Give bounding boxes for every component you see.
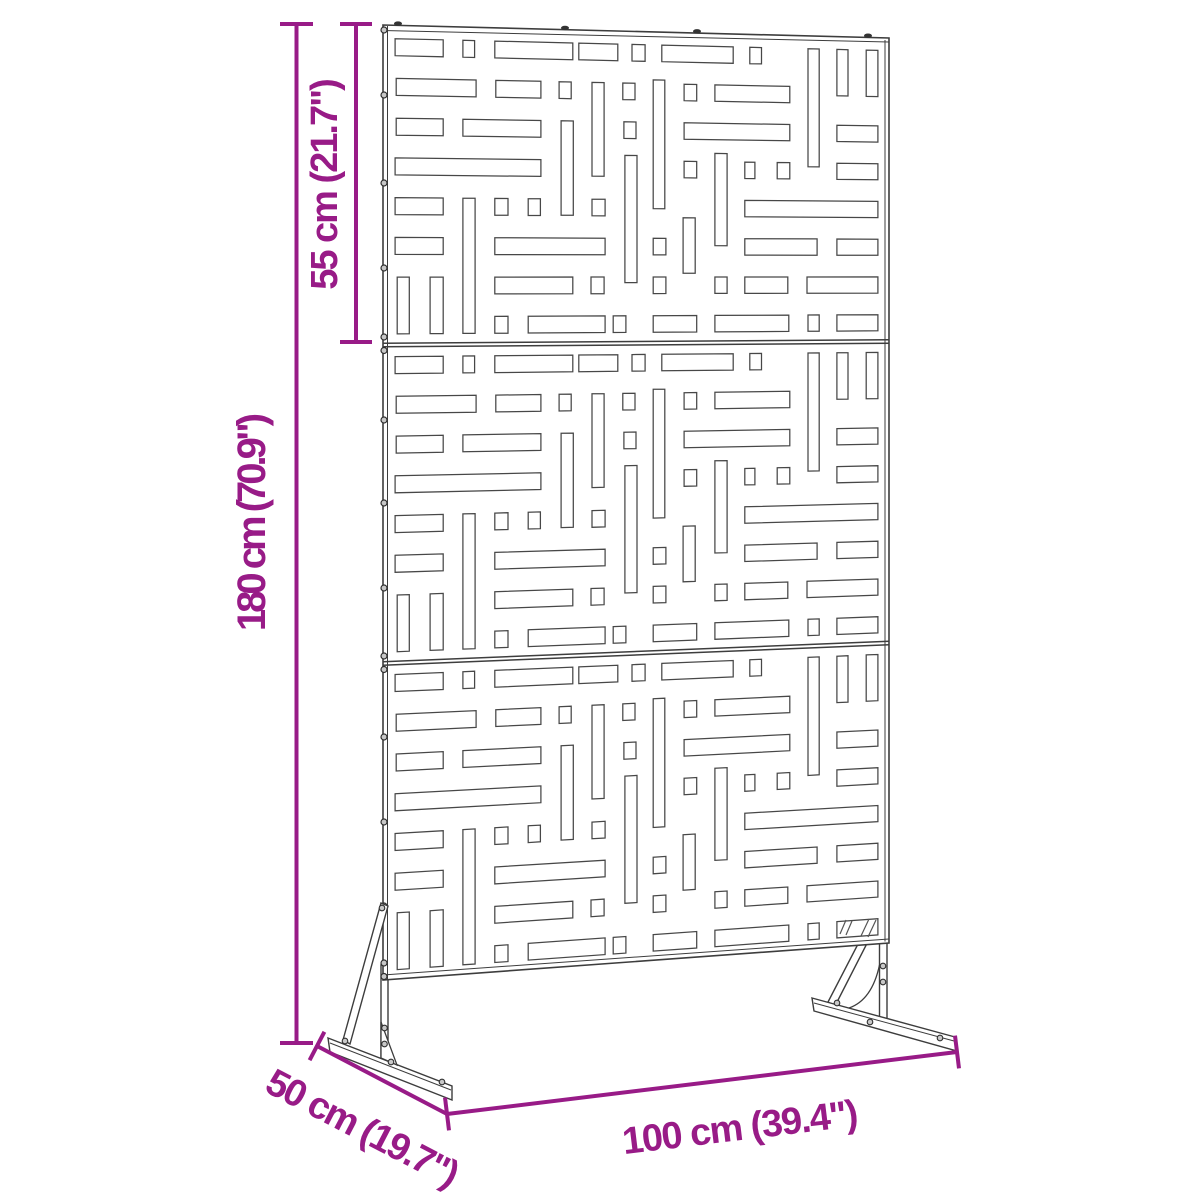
cutout bbox=[395, 198, 443, 215]
cutout bbox=[653, 856, 666, 873]
screw bbox=[381, 417, 387, 423]
screw bbox=[381, 334, 387, 340]
cutout bbox=[653, 238, 666, 255]
cutout bbox=[395, 870, 443, 890]
cutout bbox=[495, 667, 573, 687]
cutout bbox=[750, 353, 762, 370]
screw bbox=[381, 348, 387, 354]
cutout bbox=[528, 627, 605, 647]
cutout bbox=[430, 277, 443, 334]
cutout bbox=[528, 512, 540, 529]
cutout bbox=[495, 355, 573, 373]
cutout bbox=[653, 624, 697, 642]
cutout bbox=[653, 932, 697, 952]
cutout bbox=[592, 510, 605, 527]
screw bbox=[381, 667, 387, 673]
cutout bbox=[396, 435, 443, 453]
cutout bbox=[808, 49, 819, 167]
cutout bbox=[632, 664, 645, 681]
cutout bbox=[495, 827, 508, 845]
cutout bbox=[559, 82, 571, 99]
cutout bbox=[592, 821, 605, 838]
cutout bbox=[807, 579, 878, 598]
cutout bbox=[395, 39, 443, 57]
cutout bbox=[745, 543, 817, 562]
cutout bbox=[463, 119, 541, 137]
cutout bbox=[395, 473, 541, 493]
cutout bbox=[745, 887, 788, 906]
cutout bbox=[837, 768, 878, 787]
cutout bbox=[684, 393, 697, 410]
cutout bbox=[715, 315, 789, 332]
cutout bbox=[495, 316, 508, 333]
cutout bbox=[866, 655, 878, 702]
cutout bbox=[837, 315, 878, 331]
cutout bbox=[591, 277, 604, 294]
cutout bbox=[496, 395, 541, 412]
cutout bbox=[395, 673, 443, 692]
cutout bbox=[684, 701, 697, 718]
cutout bbox=[579, 355, 618, 372]
screw bbox=[381, 585, 387, 591]
dimension-label-section-height: 55 cm (21.7") bbox=[304, 80, 346, 290]
cutout bbox=[632, 44, 645, 61]
cutout bbox=[395, 514, 443, 532]
cutout bbox=[395, 554, 443, 572]
cutout bbox=[397, 277, 409, 334]
screw bbox=[381, 500, 387, 506]
screw bbox=[381, 92, 387, 98]
screw bbox=[381, 653, 387, 659]
cutout bbox=[837, 163, 878, 180]
cutout bbox=[653, 547, 666, 564]
cutout bbox=[397, 595, 409, 652]
width-dimension: 100 cm (39.4") bbox=[445, 1036, 959, 1163]
screw bbox=[381, 960, 387, 966]
cutout bbox=[625, 466, 637, 594]
cutout bbox=[430, 593, 443, 650]
cutout bbox=[837, 428, 878, 445]
screw bbox=[381, 819, 387, 825]
cutout bbox=[653, 586, 666, 603]
cutout bbox=[837, 466, 878, 483]
cutout bbox=[837, 49, 848, 96]
cutout bbox=[623, 703, 635, 720]
section-height-dimension: 55 cm (21.7") bbox=[304, 24, 372, 342]
cutout bbox=[623, 83, 635, 100]
cutout bbox=[463, 40, 475, 57]
cutout bbox=[495, 238, 605, 255]
cutout bbox=[592, 82, 604, 176]
cutout bbox=[395, 158, 541, 177]
cutout bbox=[495, 513, 508, 530]
cutout bbox=[750, 659, 762, 676]
cutout bbox=[559, 706, 571, 723]
cutout bbox=[715, 696, 790, 716]
cutout bbox=[745, 774, 755, 791]
cutout bbox=[715, 584, 727, 601]
cutout bbox=[662, 661, 733, 681]
cutout bbox=[715, 768, 727, 861]
cutout bbox=[495, 631, 508, 648]
cutout bbox=[591, 588, 604, 605]
cutout bbox=[463, 514, 475, 650]
cutout bbox=[396, 711, 476, 732]
cutout bbox=[613, 626, 626, 643]
cutout bbox=[745, 468, 755, 485]
cutout bbox=[715, 461, 727, 553]
cutout bbox=[683, 526, 695, 582]
cutout bbox=[837, 125, 878, 142]
cutout bbox=[837, 730, 878, 748]
cutout bbox=[684, 123, 790, 141]
screw-head bbox=[394, 21, 402, 25]
cutout bbox=[495, 41, 573, 60]
cutout bbox=[837, 843, 878, 862]
screw-head bbox=[693, 29, 701, 33]
screw-head bbox=[561, 26, 569, 30]
cutout bbox=[808, 353, 819, 471]
cutout bbox=[463, 198, 475, 333]
cutout bbox=[625, 155, 637, 282]
cutout bbox=[613, 316, 626, 333]
cutout bbox=[592, 394, 604, 488]
cutout bbox=[397, 912, 409, 970]
cutout bbox=[561, 745, 573, 840]
screw bbox=[381, 265, 387, 271]
cutout bbox=[528, 825, 540, 843]
cutout bbox=[684, 470, 697, 487]
cutout bbox=[463, 356, 475, 373]
cutout bbox=[750, 47, 762, 64]
cutout bbox=[837, 656, 848, 703]
cutout bbox=[745, 582, 788, 600]
cutout bbox=[745, 239, 817, 256]
cutout bbox=[777, 468, 790, 485]
cutout bbox=[561, 433, 573, 527]
cutout bbox=[496, 80, 541, 98]
cutout bbox=[653, 277, 666, 294]
cutout bbox=[653, 895, 666, 912]
cutout bbox=[684, 778, 697, 795]
screw bbox=[381, 734, 387, 740]
cutout bbox=[624, 432, 636, 449]
cutout bbox=[808, 315, 819, 331]
product-dimension-diagram: 180 cm (70.9") 55 cm (21.7") 50 cm (19.7… bbox=[0, 0, 1200, 1200]
cutout bbox=[592, 199, 605, 216]
cutout bbox=[623, 393, 635, 410]
cutout bbox=[592, 705, 604, 799]
cutout bbox=[430, 910, 443, 967]
cutout bbox=[396, 78, 476, 97]
cutout bbox=[495, 198, 508, 215]
cutout bbox=[561, 121, 573, 216]
dimension-label-total-height: 180 cm (70.9") bbox=[230, 414, 274, 631]
cutout bbox=[495, 589, 573, 609]
dimension-label-width: 100 cm (39.4") bbox=[620, 1093, 859, 1163]
cutout bbox=[866, 50, 878, 97]
cutout bbox=[808, 923, 819, 940]
cutout bbox=[395, 831, 443, 851]
screw bbox=[381, 27, 387, 33]
cutout bbox=[395, 356, 443, 373]
cutout bbox=[715, 153, 727, 245]
cutout bbox=[624, 742, 636, 759]
cutout bbox=[395, 237, 443, 254]
screen-panel bbox=[381, 21, 889, 980]
screw-head bbox=[864, 34, 872, 38]
cutout bbox=[463, 747, 541, 768]
cutout bbox=[837, 617, 878, 635]
cutout bbox=[624, 122, 636, 139]
cutout bbox=[653, 80, 665, 209]
cutout bbox=[745, 200, 878, 217]
cutout bbox=[591, 899, 604, 917]
dimension-diagram-canvas: 180 cm (70.9") 55 cm (21.7") 50 cm (19.7… bbox=[0, 0, 1200, 1200]
cutout bbox=[579, 43, 618, 61]
cutout bbox=[745, 277, 788, 293]
cutout bbox=[715, 891, 727, 908]
cutout bbox=[463, 434, 541, 452]
cutout bbox=[715, 391, 790, 408]
cutout bbox=[495, 549, 605, 569]
cutout bbox=[463, 829, 475, 965]
cutout bbox=[777, 163, 790, 179]
cutout bbox=[653, 316, 697, 333]
cutout bbox=[662, 45, 733, 63]
cutout bbox=[684, 84, 697, 101]
cutout bbox=[837, 239, 878, 255]
cutout bbox=[808, 657, 819, 776]
cutout bbox=[745, 503, 878, 523]
cutout bbox=[837, 353, 848, 400]
screw bbox=[381, 974, 387, 980]
cutout bbox=[683, 834, 695, 890]
total-height-dimension: 180 cm (70.9") bbox=[230, 24, 313, 1043]
cutout bbox=[807, 277, 878, 293]
cutout bbox=[662, 354, 733, 371]
cutout bbox=[528, 199, 540, 216]
cutout bbox=[837, 541, 878, 558]
cutout bbox=[396, 118, 443, 136]
cutout bbox=[632, 354, 645, 371]
cutout bbox=[745, 162, 755, 179]
cutout bbox=[496, 708, 541, 727]
cutout bbox=[715, 620, 789, 639]
cutout bbox=[653, 698, 665, 827]
cutout bbox=[579, 665, 618, 683]
cutout bbox=[495, 277, 573, 294]
screw bbox=[381, 180, 387, 186]
right-gusset bbox=[849, 965, 880, 1008]
cutout bbox=[495, 945, 508, 963]
cutout bbox=[715, 85, 790, 103]
cutout bbox=[463, 671, 475, 688]
cutout bbox=[396, 395, 476, 413]
cutout bbox=[866, 352, 878, 398]
cutout bbox=[625, 775, 637, 903]
cutout bbox=[396, 752, 443, 771]
cutout bbox=[808, 619, 819, 636]
cutout bbox=[683, 218, 695, 273]
cutout bbox=[715, 277, 727, 293]
cutout bbox=[559, 394, 571, 411]
cutout bbox=[613, 937, 626, 955]
cutout bbox=[528, 316, 605, 333]
cutout bbox=[684, 161, 697, 178]
cutout bbox=[777, 773, 790, 790]
cutout bbox=[653, 389, 665, 518]
cutout bbox=[684, 429, 790, 447]
